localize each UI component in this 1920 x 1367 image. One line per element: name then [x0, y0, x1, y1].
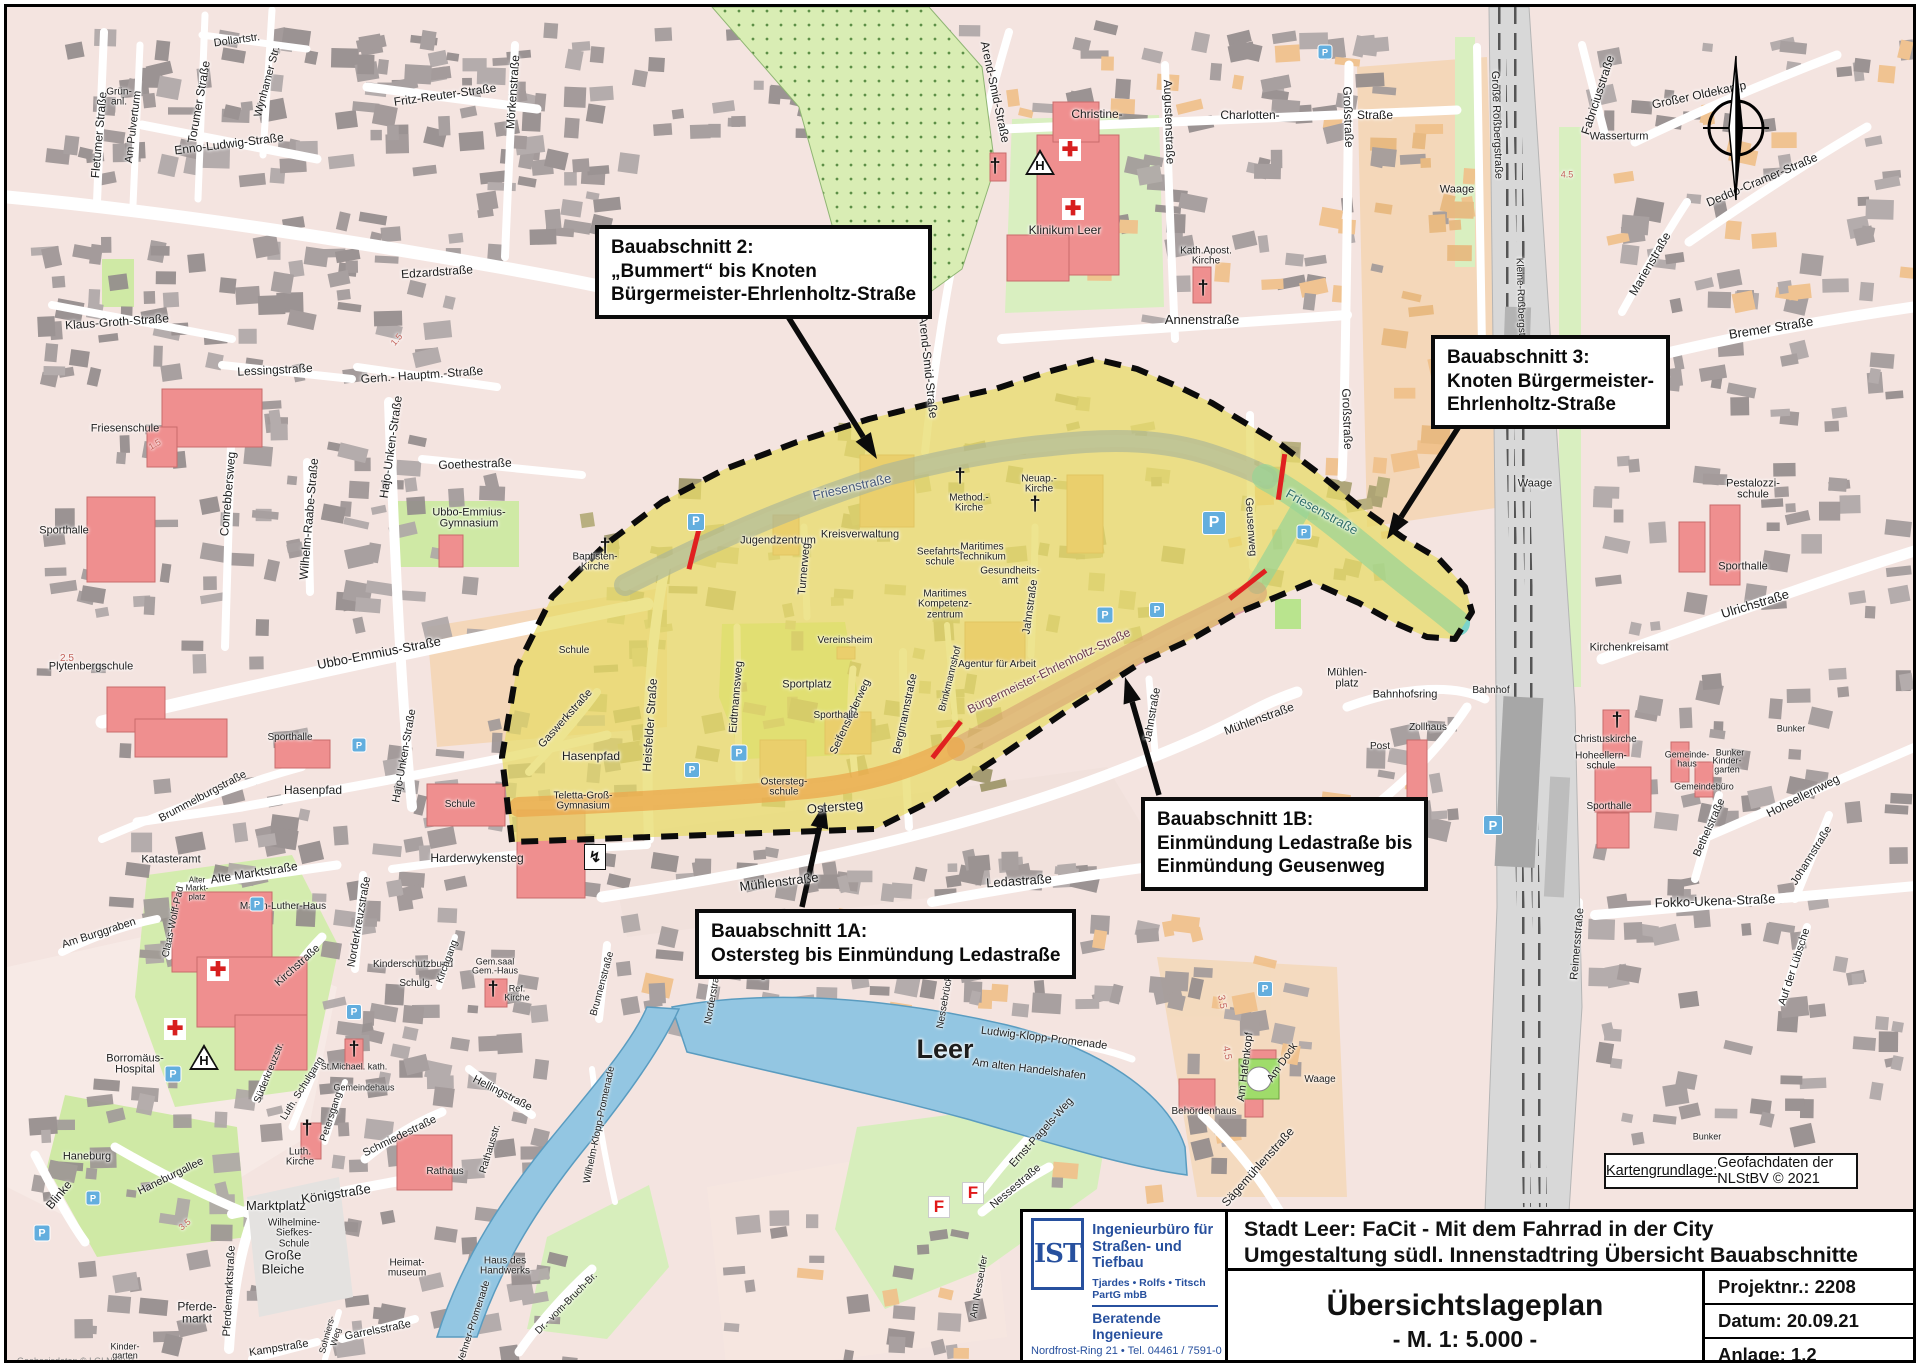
church-cross-icon: †: [954, 466, 965, 489]
firm-subtitle: Beratende Ingenieure: [1092, 1310, 1218, 1342]
ist-logo: IST: [1031, 1218, 1084, 1290]
plan-info-panel: Projektnr.: 2208 Datum: 20.09.21 Anlage:…: [1705, 1271, 1916, 1363]
plan-title-panel: Übersichtslageplan - M. 1: 5.000 -: [1228, 1271, 1705, 1363]
firm-partners: Tjardes • Rolfs • Titsch PartG mbB: [1092, 1277, 1218, 1301]
hospital-cross-icon: ✚: [1059, 139, 1081, 161]
parking-icon: P: [34, 1225, 51, 1242]
source-text: Geofachdaten der NLStBV © 2021: [1717, 1155, 1856, 1187]
parking-icon: P: [731, 745, 748, 762]
hospital-cross-icon: ✚: [1062, 198, 1084, 220]
hospital-cross-icon: ✚: [207, 959, 229, 981]
firm-address-1: Nordfrost-Ring 21 • Tel. 04461 / 7591-0: [1031, 1345, 1218, 1357]
hospital-route-icon: H: [189, 1044, 219, 1070]
parking-icon: P: [1097, 607, 1114, 624]
firm-divider: [1092, 1305, 1218, 1307]
church-cross-icon: †: [1611, 710, 1622, 733]
fire-hydrant-icon: F: [928, 1196, 950, 1218]
callout-line: Bürgermeister-Ehrlenholtz-Straße: [611, 283, 916, 307]
callout-line: Bauabschnitt 2:: [611, 236, 916, 260]
project-title-line2: Umgestaltung südl. Innenstadtring Übersi…: [1244, 1242, 1916, 1268]
callout-bauabschnitt-3: Bauabschnitt 3:Knoten Bürgermeister-Ehrl…: [1431, 335, 1670, 429]
source-label: Kartengrundlage:: [1606, 1163, 1717, 1179]
church-cross-icon: †: [301, 1118, 312, 1141]
base-data-note: Geobasisdaten © LGLN 2021: [17, 1356, 135, 1363]
project-number: Projektnr.: 2208: [1705, 1271, 1916, 1305]
callout-line: Ehrlenholtz-Straße: [1447, 393, 1654, 417]
church-cross-icon: †: [487, 979, 498, 1002]
hospital-cross-icon: ✚: [164, 1018, 186, 1040]
plan-sheet: LeerFletumer StraßeAm PulverturmTorumer …: [0, 0, 1920, 1367]
church-cross-icon: †: [348, 1039, 359, 1062]
parking-icon: P: [684, 762, 700, 778]
firm-address-2: 26419 Schortens • info@ist-planung.de: [1031, 1360, 1218, 1363]
title-block: IST Ingenieurbüro für Straßen- und Tiefb…: [1020, 1209, 1916, 1363]
callout-bauabschnitt-1b: Bauabschnitt 1B:Einmündung Ledastraße bi…: [1141, 797, 1428, 891]
plan-title: Übersichtslageplan: [1327, 1289, 1604, 1323]
map-canvas[interactable]: LeerFletumer StraßeAm PulverturmTorumer …: [4, 4, 1916, 1363]
callout-line: Einmündung Ledastraße bis: [1157, 832, 1412, 856]
church-cross-icon: †: [989, 156, 1000, 179]
church-cross-icon: †: [599, 536, 610, 559]
parking-icon: P: [1483, 815, 1503, 835]
hospital-route-icon: H: [1025, 149, 1055, 175]
plan-attachment: Anlage: 1.2: [1705, 1339, 1916, 1363]
parking-icon: P: [687, 513, 705, 531]
parking-icon: P: [1297, 525, 1312, 540]
parking-icon: P: [1318, 45, 1333, 60]
callout-line: Bauabschnitt 3:: [1447, 346, 1654, 370]
fire-hydrant-icon: F: [962, 1182, 984, 1204]
parking-icon: P: [250, 897, 265, 912]
power-station-icon: ↯: [584, 844, 606, 870]
project-title-line1: Stadt Leer: FaCit - Mit dem Fahrrad in d…: [1244, 1216, 1916, 1242]
parking-icon: P: [86, 1191, 101, 1206]
grosse-bleiche-plaza: [247, 1177, 353, 1317]
parking-icon: P: [165, 1066, 182, 1083]
parking-icon: P: [1257, 981, 1273, 997]
church-cross-icon: †: [1029, 494, 1040, 517]
compass-north-arrow: [1697, 49, 1787, 214]
parking-icon: P: [1202, 511, 1226, 535]
map-source-note: Kartengrundlage: Geofachdaten der NLStBV…: [1604, 1153, 1858, 1189]
parking-icon: P: [352, 738, 367, 753]
callout-line: Knoten Bürgermeister-: [1447, 370, 1654, 394]
callout-bauabschnitt-1a: Bauabschnitt 1A:Ostersteg bis Einmündung…: [695, 909, 1076, 979]
callout-line: Einmündung Geusenweg: [1157, 855, 1412, 879]
plan-scale: - M. 1: 5.000 -: [1393, 1326, 1537, 1353]
callout-line: Bauabschnitt 1A:: [711, 920, 1060, 944]
callout-line: Ostersteg bis Einmündung Ledastraße: [711, 944, 1060, 968]
firm-name-line1: Ingenieurbüro für: [1092, 1222, 1213, 1238]
callout-line: „Bummert“ bis Knoten: [611, 260, 916, 284]
firm-panel: IST Ingenieurbüro für Straßen- und Tiefb…: [1023, 1212, 1228, 1363]
firm-name-line2: Straßen- und Tiefbau: [1092, 1239, 1181, 1272]
parking-icon: P: [1149, 602, 1165, 618]
plan-date: Datum: 20.09.21: [1705, 1305, 1916, 1339]
callout-line: Bauabschnitt 1B:: [1157, 808, 1412, 832]
parking-icon: P: [346, 1004, 362, 1020]
project-title: Stadt Leer: FaCit - Mit dem Fahrrad in d…: [1228, 1212, 1916, 1271]
callout-bauabschnitt-2: Bauabschnitt 2:„Bummert“ bis KnotenBürge…: [595, 225, 932, 319]
church-cross-icon: †: [1197, 278, 1208, 301]
